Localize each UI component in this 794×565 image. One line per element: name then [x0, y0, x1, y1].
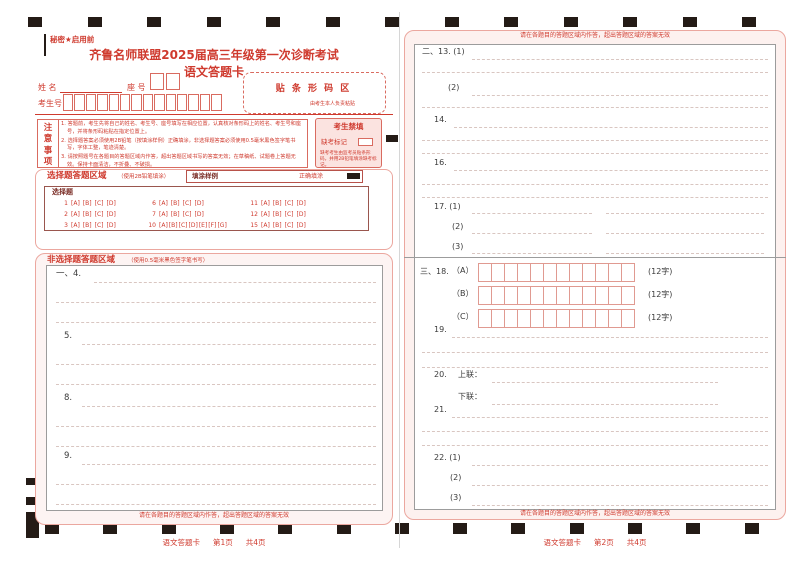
- choice-option[interactable]: D: [107, 201, 116, 207]
- question-number: 2: [58, 212, 68, 218]
- question-label: (3): [452, 243, 463, 251]
- candidate-digit-box[interactable]: [166, 94, 176, 111]
- answer-line[interactable]: [56, 363, 376, 365]
- correct-fill-label: 正确填涂: [299, 174, 323, 180]
- no-fill-note: 缺考考生由监考员贴条形码，并用2B铅笔填涂缺考标记。: [320, 151, 378, 170]
- registration-mark: [386, 135, 398, 142]
- choice-option[interactable]: A: [71, 212, 80, 218]
- choice-option[interactable]: D: [195, 201, 204, 207]
- answer-line[interactable]: [472, 504, 768, 506]
- registration-mark: [28, 17, 42, 27]
- char-box[interactable]: [491, 286, 505, 305]
- registration-mark: [564, 17, 578, 27]
- answer-line[interactable]: [56, 425, 376, 427]
- registration-mark: [628, 523, 642, 534]
- question-label: (12字): [648, 314, 672, 322]
- answer-line[interactable]: [472, 232, 592, 234]
- warning-text: 请在各题目的答题区域内作答，超出答题区域的答案无效: [35, 513, 393, 519]
- question-label: (2): [448, 84, 459, 92]
- notice-item: 2. 选择题答案必须使用2B铅笔（按填涂样例）正确填涂，非选择题答案必须使用0.…: [61, 138, 304, 154]
- char-box[interactable]: [543, 286, 557, 305]
- question-label: 三、18.: [420, 268, 449, 276]
- choice-option[interactable]: A: [71, 201, 80, 207]
- char-box[interactable]: [582, 286, 596, 305]
- question-number: 7: [144, 212, 156, 218]
- notice-label: 注意事项: [41, 123, 55, 169]
- choice-option[interactable]: C: [95, 212, 104, 218]
- candidate-digit-box[interactable]: [63, 94, 73, 111]
- candidate-digit-box[interactable]: [131, 94, 141, 111]
- barcode-note: 由考生本人负责粘贴: [310, 102, 355, 107]
- candidate-digit-box[interactable]: [97, 94, 107, 111]
- answer-line[interactable]: [454, 126, 768, 128]
- registration-mark: [395, 523, 409, 534]
- answer-line[interactable]: [454, 169, 768, 171]
- char-box[interactable]: [543, 309, 557, 328]
- fill-sample-label: 填涂样例: [192, 173, 218, 180]
- char-box[interactable]: [582, 309, 596, 328]
- candidate-digit-box[interactable]: [188, 94, 198, 111]
- warning-text: 请在各题目的答题区域内作答，超出答题区域的答案无效: [404, 33, 786, 39]
- char-box[interactable]: [595, 309, 609, 328]
- absent-mark-box[interactable]: [358, 138, 373, 146]
- candidate-digit-box[interactable]: [120, 94, 130, 111]
- essay-subtitle: （使用0.5毫米黑色签字笔书写）: [128, 259, 208, 265]
- registration-mark: [683, 17, 697, 27]
- question-label: (12字): [648, 291, 672, 299]
- char-box[interactable]: [504, 263, 518, 282]
- char-box[interactable]: [517, 309, 531, 328]
- choice-option[interactable]: B: [169, 223, 178, 229]
- notice-item: 3. 请按照题号在各题目的答题区域内作答，超出答题区域书写的答案无效；在草稿纸、…: [61, 154, 304, 170]
- question-number: 11: [246, 201, 258, 207]
- char-box[interactable]: [608, 263, 622, 282]
- question-label: 16.: [434, 159, 447, 167]
- choice-option[interactable]: D: [297, 212, 306, 218]
- choice-option[interactable]: C: [183, 201, 192, 207]
- answer-line[interactable]: [472, 94, 768, 96]
- header-divider-line: [35, 114, 393, 115]
- char-box[interactable]: [478, 263, 492, 282]
- choice-title: 选择题答题区域: [47, 172, 107, 181]
- registration-mark: [570, 523, 584, 534]
- registration-mark: [511, 523, 525, 534]
- answer-line[interactable]: [452, 416, 768, 418]
- choice-option[interactable]: B: [171, 201, 180, 207]
- question-number: 6: [144, 201, 156, 207]
- char-box[interactable]: [569, 286, 583, 305]
- answer-line[interactable]: [56, 383, 376, 385]
- registration-mark: [745, 523, 759, 534]
- choice-option[interactable]: C: [285, 223, 294, 229]
- choice-question: 11ABCD: [246, 201, 309, 209]
- char-box[interactable]: [621, 263, 635, 282]
- answer-line[interactable]: [472, 464, 768, 466]
- choice-option[interactable]: D: [189, 223, 198, 229]
- choice-option[interactable]: B: [83, 223, 92, 229]
- choice-option[interactable]: F: [208, 223, 216, 229]
- question-label: (12字): [648, 268, 672, 276]
- answer-line[interactable]: [56, 483, 376, 485]
- notice-box: 注意事项1. 答题前，考生先将自己的姓名、考生号、座号填写在相应位置，认真核对条…: [37, 119, 308, 168]
- answer-line[interactable]: [422, 366, 768, 368]
- question-number: 15: [246, 223, 258, 229]
- registration-mark: [453, 523, 467, 534]
- question-label: (3): [450, 494, 461, 502]
- exam-title: 齐鲁名师联盟2025届高三年级第一次诊断考试: [35, 49, 393, 61]
- no-fill-box: 考生禁填缺考标记缺考考生由监考员贴条形码，并用2B铅笔填涂缺考标记。: [315, 118, 382, 168]
- question-label: (2): [450, 474, 461, 482]
- answer-line[interactable]: [56, 321, 376, 323]
- char-box[interactable]: [556, 309, 570, 328]
- char-box[interactable]: [491, 263, 505, 282]
- char-box[interactable]: [530, 263, 544, 282]
- registration-mark: [504, 17, 518, 27]
- question-label: 22. (1): [434, 454, 461, 462]
- char-box[interactable]: [504, 309, 518, 328]
- registration-mark: [385, 17, 399, 27]
- answer-line[interactable]: [82, 463, 376, 465]
- char-box[interactable]: [556, 286, 570, 305]
- answer-line[interactable]: [606, 252, 764, 254]
- choice-option[interactable]: B: [83, 212, 92, 218]
- question-number: 1: [58, 201, 68, 207]
- registration-mark: [207, 17, 221, 27]
- choice-question: 12ABCD: [246, 212, 309, 220]
- question-label: （A）: [452, 267, 473, 275]
- answer-line[interactable]: [452, 336, 768, 338]
- registration-mark: [88, 17, 102, 27]
- choice-question: 10ABCDEFG: [144, 223, 228, 231]
- choice-option[interactable]: A: [261, 223, 270, 229]
- question-label: 21.: [434, 406, 447, 414]
- answer-line[interactable]: [82, 405, 376, 407]
- page-divider: [399, 12, 400, 548]
- question-label: 8.: [64, 394, 72, 403]
- essay-title: 非选择题答题区域: [47, 256, 115, 265]
- choice-option[interactable]: D: [107, 223, 116, 229]
- answer-line[interactable]: [422, 139, 768, 141]
- footer-page: 第2页: [594, 539, 614, 547]
- answer-line[interactable]: [472, 212, 592, 214]
- char-box[interactable]: [491, 309, 505, 328]
- char-box[interactable]: [595, 286, 609, 305]
- answer-line[interactable]: [472, 484, 768, 486]
- answer-line[interactable]: [422, 444, 768, 446]
- candidate-label: 考生号: [38, 100, 62, 108]
- char-box[interactable]: [569, 309, 583, 328]
- choice-inner-title: 选择题: [52, 189, 73, 196]
- candidate-digit-box[interactable]: [177, 94, 187, 111]
- registration-mark: [266, 17, 280, 27]
- candidate-digit-box[interactable]: [154, 94, 164, 111]
- answer-line[interactable]: [472, 252, 592, 254]
- char-box[interactable]: [517, 263, 531, 282]
- choice-question: 3ABCD: [58, 223, 119, 231]
- answer-line[interactable]: [56, 503, 376, 505]
- question-label: （C）: [452, 313, 474, 321]
- choice-option[interactable]: D: [107, 212, 116, 218]
- seat-box[interactable]: [166, 73, 180, 90]
- choice-option[interactable]: D: [297, 223, 306, 229]
- registration-mark: [147, 17, 161, 27]
- choice-option[interactable]: B: [273, 201, 282, 207]
- answer-line[interactable]: [472, 58, 768, 60]
- question-label: （B）: [452, 290, 474, 298]
- choice-option[interactable]: A: [261, 212, 270, 218]
- answer-sheet-scan: 秘密★启用前齐鲁名师联盟2025届高三年级第一次诊断考试语文答题卡姓 名座 号考…: [0, 0, 794, 565]
- footer-total: 共4页: [627, 539, 647, 547]
- char-box[interactable]: [556, 263, 570, 282]
- question-label: 二、13. (1): [422, 48, 465, 56]
- choice-option[interactable]: C: [179, 223, 188, 229]
- warning-text: 请在各题目的答题区域内作答，超出答题区域的答案无效: [404, 511, 786, 517]
- choice-question: 6ABCD: [144, 201, 207, 209]
- registration-mark: [445, 17, 459, 27]
- choice-option[interactable]: A: [159, 201, 168, 207]
- candidate-digit-box[interactable]: [200, 94, 210, 111]
- question-number: 10: [144, 223, 156, 229]
- choice-question: 15ABCD: [246, 223, 309, 231]
- absent-mark-label: 缺考标记: [321, 139, 347, 146]
- choice-option[interactable]: B: [171, 212, 180, 218]
- registration-mark: [623, 17, 637, 27]
- question-label: (2): [452, 223, 463, 231]
- answer-line[interactable]: [492, 403, 718, 405]
- question-label: 一、4.: [56, 270, 81, 279]
- choice-option[interactable]: C: [183, 212, 192, 218]
- char-box[interactable]: [478, 286, 492, 305]
- choice-option[interactable]: B: [273, 223, 282, 229]
- char-box[interactable]: [608, 309, 622, 328]
- notice-item: 1. 答题前，考生先将自己的姓名、考生号、座号填写在相应位置，认真核对条形码上的…: [61, 121, 304, 137]
- answer-line[interactable]: [56, 445, 376, 447]
- question-label: 14.: [434, 116, 447, 124]
- answer-line[interactable]: [56, 301, 376, 303]
- choice-option[interactable]: D: [195, 212, 204, 218]
- question-label: 20.: [434, 371, 447, 379]
- choice-question: 1ABCD: [58, 201, 119, 209]
- section-divider: [404, 257, 786, 258]
- answer-line[interactable]: [422, 152, 768, 154]
- choice-option[interactable]: C: [95, 223, 104, 229]
- choice-option[interactable]: C: [285, 201, 294, 207]
- seat-box[interactable]: [150, 73, 164, 90]
- registration-mark: [686, 523, 700, 534]
- choice-option[interactable]: G: [217, 223, 226, 229]
- candidate-digit-box[interactable]: [86, 94, 96, 111]
- choice-option[interactable]: A: [159, 223, 168, 229]
- answer-line[interactable]: [606, 232, 764, 234]
- choice-option[interactable]: E: [199, 223, 207, 229]
- secrecy-label: 秘密★启用前: [50, 36, 94, 44]
- choice-question: 2ABCD: [58, 212, 119, 220]
- choice-option[interactable]: A: [71, 223, 80, 229]
- char-box[interactable]: [504, 286, 518, 305]
- answer-line[interactable]: [422, 196, 768, 198]
- barcode-area[interactable]: 贴 条 形 码 区由考生本人负责粘贴: [243, 72, 386, 114]
- char-box[interactable]: [582, 263, 596, 282]
- question-label: 5.: [64, 332, 72, 341]
- candidate-digit-box[interactable]: [74, 94, 84, 111]
- question-number: 3: [58, 223, 68, 229]
- char-box[interactable]: [530, 309, 544, 328]
- footer-total: 共4页: [246, 539, 266, 547]
- footer: 语文答题卡第1页共4页: [35, 539, 393, 547]
- seat-label: 座 号: [127, 84, 146, 92]
- footer-title: 语文答题卡: [162, 539, 200, 547]
- char-box[interactable]: [569, 263, 583, 282]
- answer-line[interactable]: [422, 106, 768, 108]
- char-box[interactable]: [517, 286, 531, 305]
- question-number: 12: [246, 212, 258, 218]
- question-label: 19.: [434, 326, 447, 334]
- answer-line[interactable]: [422, 183, 768, 185]
- question-label: 17. (1): [434, 203, 461, 211]
- char-box[interactable]: [543, 263, 557, 282]
- char-box[interactable]: [608, 286, 622, 305]
- question-label: 下联：: [458, 393, 482, 401]
- choice-option[interactable]: B: [273, 212, 282, 218]
- question-label: 上联：: [458, 371, 482, 379]
- char-box[interactable]: [621, 286, 635, 305]
- candidate-digit-box[interactable]: [109, 94, 119, 111]
- answer-line[interactable]: [492, 381, 718, 383]
- choice-option[interactable]: A: [261, 201, 270, 207]
- candidate-digit-box[interactable]: [211, 94, 221, 111]
- char-box[interactable]: [595, 263, 609, 282]
- footer-title: 语文答题卡: [543, 539, 581, 547]
- choice-question: 7ABCD: [144, 212, 207, 220]
- choice-option[interactable]: C: [285, 212, 294, 218]
- footer: 语文答题卡第2页共4页: [404, 539, 786, 547]
- answer-line[interactable]: [82, 343, 376, 345]
- registration-mark: [742, 17, 756, 27]
- name-label: 姓 名: [38, 84, 57, 92]
- choice-option[interactable]: C: [95, 201, 104, 207]
- registration-mark: [326, 17, 340, 27]
- choice-subtitle: （使用2B铅笔填涂）: [118, 175, 169, 181]
- char-box[interactable]: [621, 309, 635, 328]
- char-box[interactable]: [530, 286, 544, 305]
- choice-option[interactable]: A: [159, 212, 168, 218]
- footer-page: 第1页: [213, 539, 233, 547]
- answer-line[interactable]: [422, 430, 768, 432]
- question-label: 9.: [64, 452, 72, 461]
- name-underline[interactable]: [60, 83, 122, 93]
- answer-line[interactable]: [422, 351, 768, 353]
- candidate-digit-box[interactable]: [143, 94, 153, 111]
- char-box[interactable]: [478, 309, 492, 328]
- notice-items: 1. 答题前，考生先将自己的姓名、考生号、座号填写在相应位置，认真核对条形码上的…: [61, 121, 304, 171]
- choice-option[interactable]: B: [83, 201, 92, 207]
- choice-option[interactable]: D: [297, 201, 306, 207]
- answer-line[interactable]: [606, 212, 764, 214]
- answer-line[interactable]: [94, 281, 376, 283]
- answer-line[interactable]: [422, 71, 768, 73]
- barcode-title: 贴 条 形 码 区: [244, 85, 383, 94]
- no-fill-title: 考生禁填: [316, 123, 381, 131]
- correct-fill-mark: [347, 173, 360, 179]
